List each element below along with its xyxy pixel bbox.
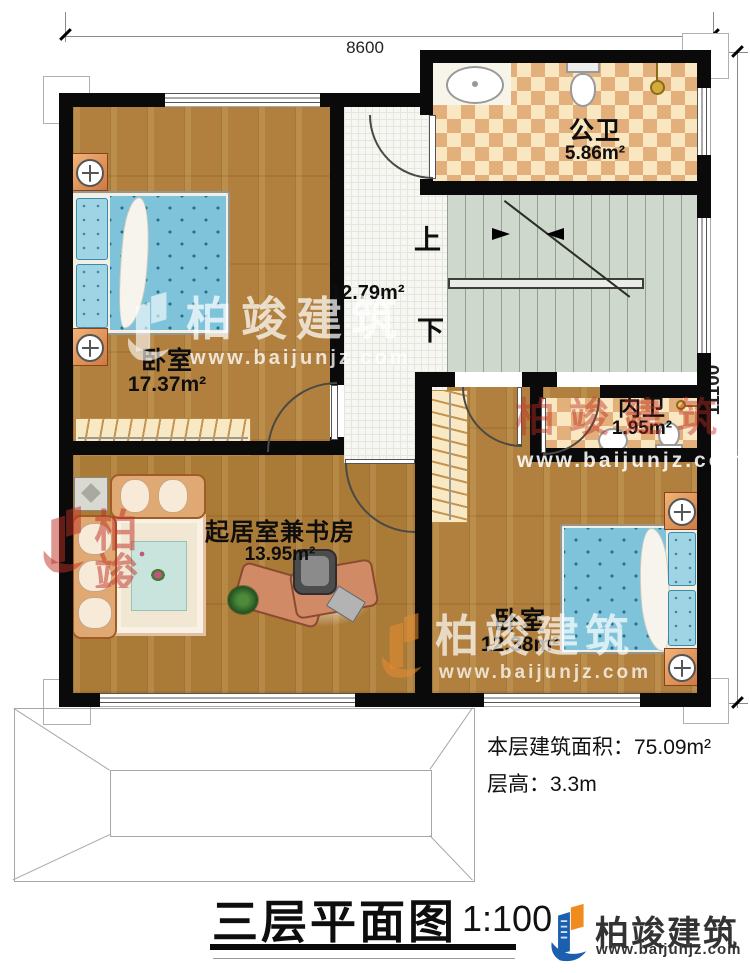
window xyxy=(484,693,640,707)
inner-bath-label: 内卫 1.95m² xyxy=(592,395,692,439)
sheet-title: 三层平面图 xyxy=(212,886,457,952)
rug-flower xyxy=(138,550,146,558)
wall xyxy=(415,387,432,693)
floor-area-note: 本层建筑面积：75.09m² xyxy=(487,731,711,761)
room-area: 17.37m² xyxy=(105,374,229,396)
toilet xyxy=(570,73,596,107)
bedroom1-label: 卧室 17.37m² xyxy=(105,348,229,396)
wardrobe-rod xyxy=(78,437,248,439)
stairs-down-label: 下 xyxy=(417,309,444,348)
top-dim-ext-left xyxy=(65,12,66,42)
hall-label: 12.79m² xyxy=(330,283,450,304)
bedroom2-label: 卧室 12.38m² xyxy=(458,608,582,656)
title-underline-thin xyxy=(213,958,515,959)
lamp-icon xyxy=(76,334,104,362)
sofa-pillow xyxy=(158,479,188,513)
room-area: 13.95m² xyxy=(170,545,390,565)
room-name: 起居室兼书房 xyxy=(170,520,390,545)
lamp-icon xyxy=(668,654,696,682)
wall xyxy=(330,93,344,385)
room-area: 5.86m² xyxy=(540,144,650,164)
window xyxy=(100,693,355,707)
right-dimension-line xyxy=(737,52,738,708)
brand-url: www.baijunjz.com xyxy=(596,941,741,958)
top-dimension-line xyxy=(65,36,713,37)
sofa-pillow xyxy=(78,523,112,555)
bedroom2-pillow xyxy=(668,532,696,586)
wall xyxy=(415,372,455,387)
closet-rod xyxy=(449,393,451,520)
sink xyxy=(446,66,504,104)
roof-outline-inner xyxy=(110,770,432,837)
stair-direction-arrow xyxy=(492,228,510,240)
bedroom2-pillow xyxy=(668,590,696,646)
wall xyxy=(59,93,73,707)
sheet-scale: 1:100 xyxy=(462,898,552,940)
nightstand xyxy=(72,328,108,366)
table-lamp-icon xyxy=(81,483,101,503)
sofa-pillow xyxy=(78,560,112,592)
room-area: 1.95m² xyxy=(592,419,692,439)
public-bath-label: 公卫 5.86m² xyxy=(540,118,650,164)
lamp-icon xyxy=(668,498,696,526)
window xyxy=(697,88,711,155)
room-name: 卧室 xyxy=(105,348,229,374)
lamp-icon xyxy=(76,159,104,187)
nightstand xyxy=(72,153,108,191)
floor-height-note: 层高：3.3m xyxy=(487,768,597,798)
living-study-label: 起居室兼书房 13.95m² xyxy=(170,520,390,565)
nightstand xyxy=(664,648,700,686)
room-name: 卧室 xyxy=(458,608,582,634)
sink-drain xyxy=(472,81,478,87)
plant xyxy=(228,586,258,614)
bedroom1-pillow xyxy=(76,264,108,328)
wall xyxy=(420,50,433,115)
wall xyxy=(420,181,711,195)
stairs-up-label: 上 xyxy=(414,218,441,257)
rug-flower xyxy=(150,568,166,582)
room-area: 12.38m² xyxy=(458,634,582,656)
bedroom2-closet xyxy=(430,390,468,523)
room-name: 公卫 xyxy=(540,118,650,144)
window xyxy=(165,93,320,107)
bedroom1-pillow xyxy=(76,198,108,260)
room-area: 12.79m² xyxy=(330,283,450,304)
wall xyxy=(420,50,711,63)
shower-cord xyxy=(656,62,658,82)
brand-logo-icon xyxy=(545,902,593,964)
title-underline xyxy=(210,944,516,950)
window xyxy=(697,218,711,353)
nightstand xyxy=(664,492,700,530)
corner-table xyxy=(74,477,108,511)
floor-plan-sheet: 8600 11100 上 下 xyxy=(0,0,750,973)
stair-direction-arrow xyxy=(546,228,564,240)
sofa-pillow xyxy=(120,479,150,513)
shower-head xyxy=(650,80,665,95)
sofa-pillow xyxy=(78,597,112,629)
room-name: 内卫 xyxy=(592,395,692,419)
